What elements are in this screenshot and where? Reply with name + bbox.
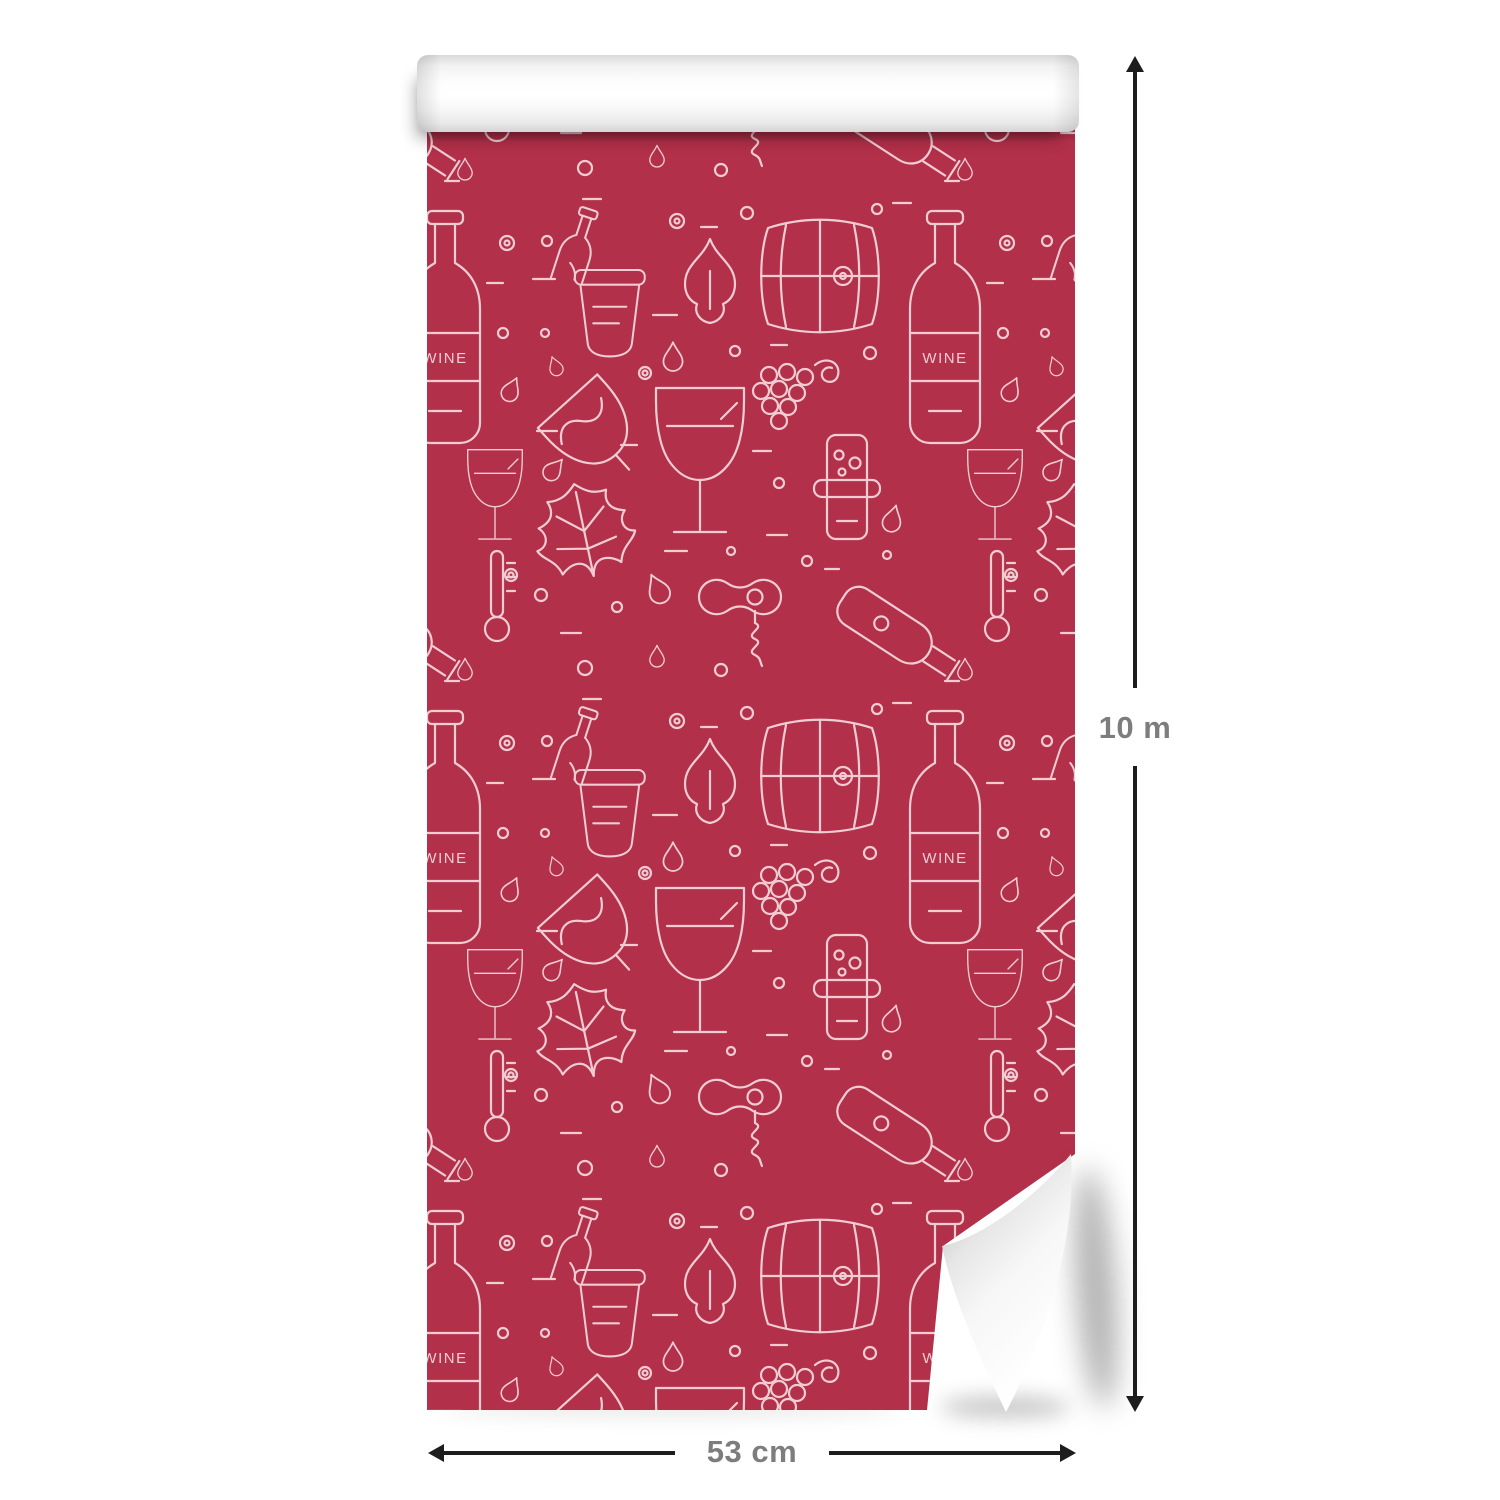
width-dimension-line-left xyxy=(442,1451,675,1455)
wallpaper-product-image: WINE xyxy=(0,0,1500,1500)
arrow-right-icon xyxy=(1060,1444,1076,1462)
wallpaper-roll-top xyxy=(417,55,1079,132)
wallpaper-sheet: WINE xyxy=(427,128,1075,1410)
width-dimension-label: 53 cm xyxy=(672,1434,832,1470)
arrow-down-icon xyxy=(1126,1396,1144,1412)
page-curl xyxy=(923,1144,1075,1414)
curl-cast-shadow xyxy=(1068,1167,1125,1409)
height-dimension-label: 10 m xyxy=(1045,710,1225,746)
curl-paper-back xyxy=(942,1154,1072,1412)
height-dimension-line-bottom xyxy=(1133,766,1137,1397)
width-dimension-line-right xyxy=(829,1451,1061,1455)
height-dimension-line-top xyxy=(1133,70,1137,688)
